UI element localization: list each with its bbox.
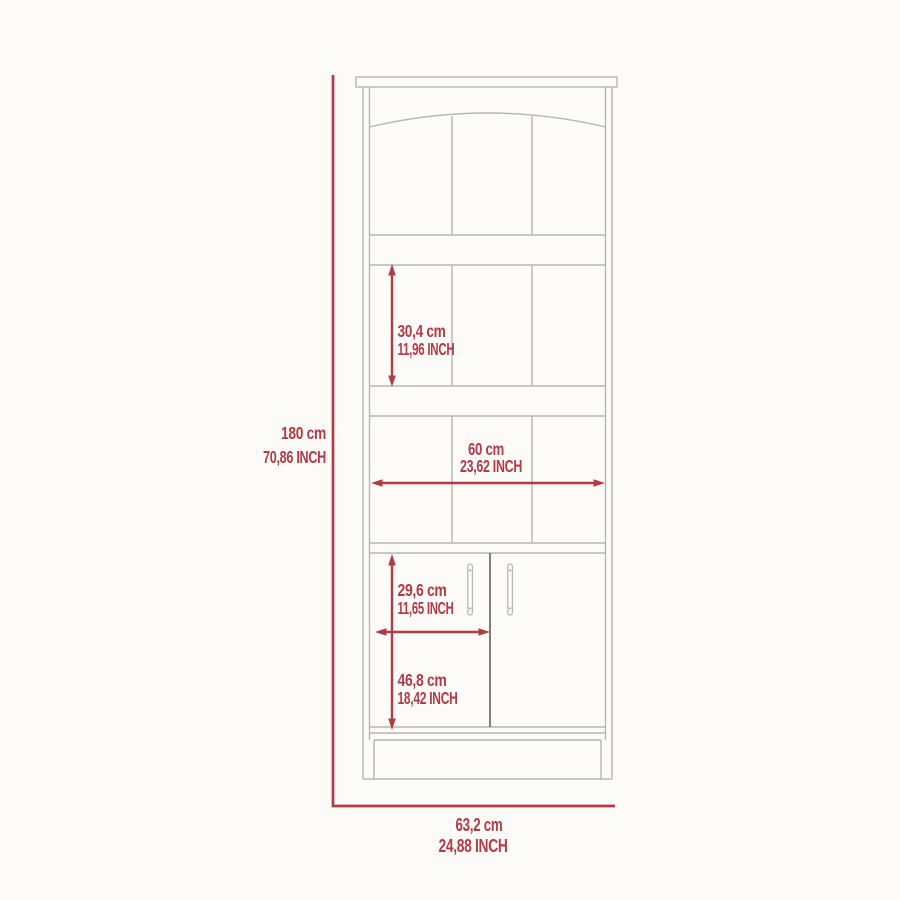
door-height-inch-label: 18,42 INCH	[398, 688, 458, 708]
shelf-height-cm-label: 30,4 cm	[398, 321, 446, 341]
overall-height-inch-label: 70,86 INCH	[263, 447, 326, 467]
handle-screw	[469, 569, 471, 571]
handle-screw	[509, 607, 511, 609]
arrowhead-right	[594, 479, 606, 487]
dimension-annotations: 180 cm 70,86 INCH 63,2 cm 24,88 INCH 30,…	[263, 75, 615, 856]
crown-top	[356, 77, 617, 87]
arrowhead-right	[479, 628, 491, 636]
right-door-handle	[508, 564, 513, 615]
door-width-cm-label: 29,6 cm	[398, 580, 447, 600]
arrowhead-up	[388, 554, 396, 566]
base-plinth	[374, 740, 601, 779]
handle-screw	[469, 607, 471, 609]
arch-trim	[370, 113, 606, 127]
arrowhead-down	[388, 376, 396, 388]
interior-width-dimension: 60 cm 23,62 INCH	[371, 439, 605, 487]
door-width-inch-label: 11,65 INCH	[398, 598, 454, 618]
overall-width-inch-label: 24,88 INCH	[439, 835, 508, 856]
shelf-height-dimension: 30,4 cm 11,96 INCH	[388, 264, 454, 387]
arrowhead-left	[371, 479, 383, 487]
door-height-cm-label: 46,8 cm	[398, 670, 447, 690]
arrowhead-left	[375, 628, 387, 636]
cabinet-drawing	[356, 77, 617, 779]
overall-width-cm-label: 63,2 cm	[456, 814, 503, 835]
shelf-height-inch-label: 11,96 INCH	[398, 339, 455, 359]
furniture-dimension-diagram: 180 cm 70,86 INCH 63,2 cm 24,88 INCH 30,…	[0, 0, 900, 900]
arrowhead-down	[388, 719, 396, 731]
interior-width-inch-label: 23,62 INCH	[460, 456, 522, 476]
arrowhead-up	[388, 264, 396, 276]
handle-screw	[509, 569, 511, 571]
left-door-handle	[468, 564, 473, 615]
overall-height-cm-label: 180 cm	[281, 423, 326, 443]
diagram-canvas: 180 cm 70,86 INCH 63,2 cm 24,88 INCH 30,…	[0, 0, 900, 900]
overall-extent-dimension: 180 cm 70,86 INCH 63,2 cm 24,88 INCH	[263, 75, 615, 856]
